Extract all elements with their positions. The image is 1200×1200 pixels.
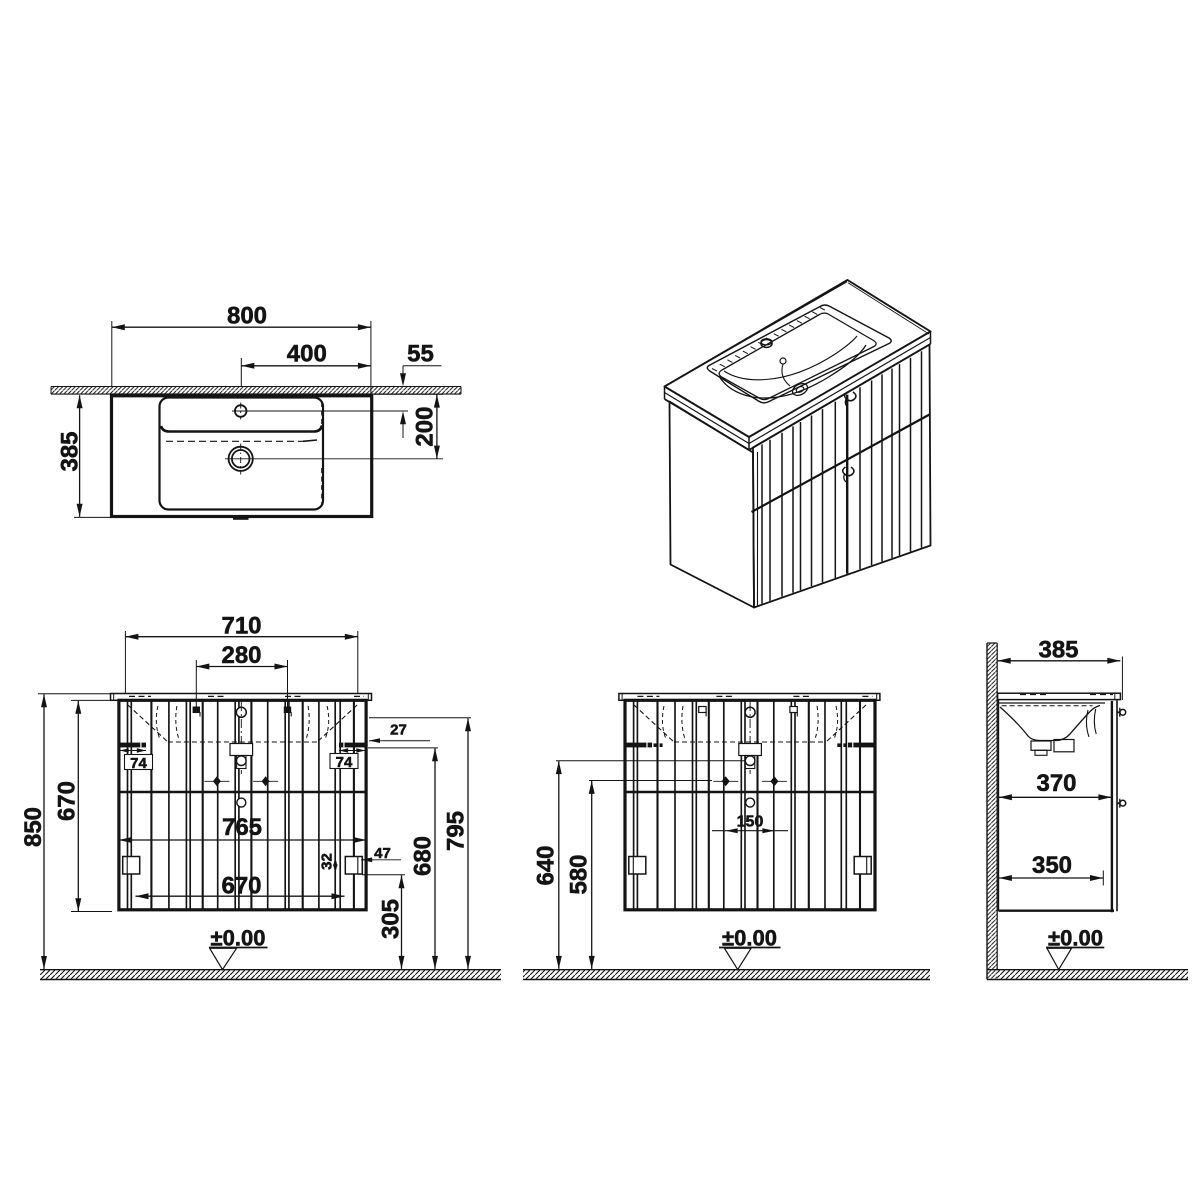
svg-text:765: 765 — [222, 814, 262, 841]
svg-text:370: 370 — [1036, 770, 1076, 797]
svg-text:150: 150 — [737, 814, 764, 831]
svg-text:385: 385 — [1038, 637, 1078, 664]
svg-text:200: 200 — [411, 407, 438, 447]
svg-text:32: 32 — [319, 853, 336, 870]
svg-text:670: 670 — [54, 781, 81, 821]
svg-text:27: 27 — [390, 722, 407, 739]
svg-text:280: 280 — [221, 642, 261, 669]
svg-text:640: 640 — [533, 845, 560, 885]
svg-text:670: 670 — [221, 873, 261, 900]
svg-text:710: 710 — [221, 613, 261, 640]
svg-text:680: 680 — [410, 836, 437, 876]
svg-text:385: 385 — [57, 431, 84, 471]
svg-text:74: 74 — [336, 754, 353, 771]
svg-text:850: 850 — [20, 807, 47, 847]
svg-text:800: 800 — [227, 303, 267, 330]
svg-text:55: 55 — [407, 341, 434, 368]
svg-text:580: 580 — [566, 854, 593, 894]
svg-text:350: 350 — [1032, 852, 1072, 879]
svg-text:795: 795 — [443, 811, 470, 851]
svg-text:305: 305 — [378, 899, 405, 939]
svg-text:400: 400 — [287, 341, 327, 368]
svg-text:74: 74 — [130, 755, 147, 772]
